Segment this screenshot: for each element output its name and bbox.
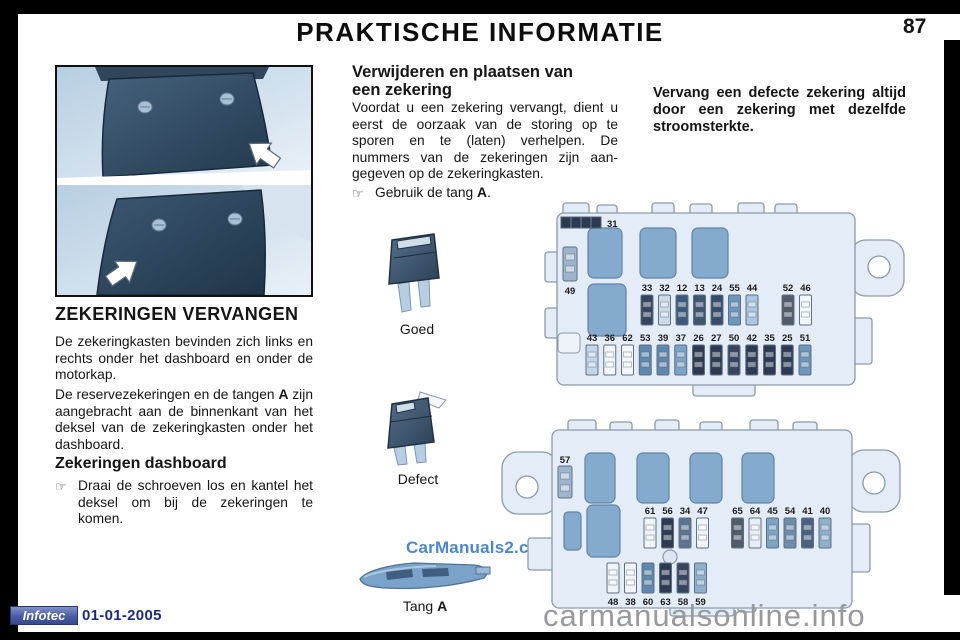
fuse-band [641,352,649,357]
side-fuse-49: 49 [563,247,577,297]
fuse [625,563,637,593]
fuse-band [804,535,812,540]
fuse-band [624,352,632,357]
fuse-band [664,525,672,530]
fuse [764,345,776,375]
fuse [819,518,831,548]
fuse [749,518,761,548]
fuse-number: 64 [750,506,761,517]
fuse [604,345,616,375]
fuse [657,345,669,375]
mounting-hole [868,256,890,278]
bullet-text: Draai de schroeven los en kantel het dek… [78,478,313,528]
fuse-number: 55 [729,283,740,294]
fuse-band [661,302,669,307]
fuse-number: 40 [820,506,831,517]
fuse-number: 27 [711,333,722,344]
fuse [767,518,779,548]
fuse [693,345,705,375]
good-fuse-icon [384,226,446,316]
fuse-band [695,362,703,367]
fuse-number: 46 [800,283,811,294]
section-title-zekeringen-vervangen: ZEKERINGEN VERVANGEN [55,304,315,325]
fuse-band [748,362,756,367]
fuse [746,295,758,325]
fuse-number: 51 [800,333,811,344]
fuse-band [699,535,707,540]
fuse-band [713,302,721,307]
fuse-band [588,362,596,367]
side-fuse-57: 57 [558,455,572,498]
fuse [781,345,793,375]
fuse [639,345,651,375]
fuse-band [644,580,652,585]
fuse-band [643,302,651,307]
fuse-band [659,352,667,357]
fuse-band [627,570,635,575]
fuse-band [606,362,614,367]
fuse-band [681,525,689,530]
fuse-band [695,352,703,357]
paragraph-fuse-replace: Voordat u een zekering vervangt, dient u… [352,100,618,183]
fuse-band [731,312,739,317]
label-text: Tang [403,598,437,614]
fuse-number: 62 [622,333,633,344]
infotec-logo: Infotec [10,606,78,625]
fuse-band [677,362,685,367]
bullet-text-part: Gebruik de tang [375,185,477,200]
fuse-number: 13 [694,283,705,294]
section-title-zekeringen-dashboard: Zekeringen dashboard [55,455,315,473]
fuse-band [821,535,829,540]
tang-tool-label: Tang A [356,598,494,614]
screw-hole [663,550,677,564]
paragraph-spare-fuses: De reservezekeringen en de tangen A zijn… [55,387,313,453]
fuse-band [712,352,720,357]
fuse-band [641,362,649,367]
fuse-band [769,535,777,540]
fuse [697,518,709,548]
fuse [660,563,672,593]
fuse-number: 54 [785,506,796,517]
section-title-verwijderen: Verwijderen en plaatsen van een zekering [352,63,590,99]
fuse-number: 56 [662,506,673,517]
fuse-number: 24 [712,283,723,294]
fuse-band [643,312,651,317]
instruction-bullet: ☞ Draai de schroeven los en kantel het d… [55,478,313,528]
fuse-band [802,302,810,307]
fuse-number: 32 [659,283,670,294]
manual-page: PRAKTISCHE INFORMATIE 87 [0,0,960,640]
fuse-band [766,362,774,367]
fuse [622,345,634,375]
fuse-band [734,525,742,530]
fuse [586,345,598,375]
fuse-band [696,302,704,307]
fuse-band [588,352,596,357]
fuse-band [748,352,756,357]
fuse-band [783,352,791,357]
fuse-band [731,302,739,307]
defect-fuse-figure: Defect [382,388,454,487]
fuse-band [627,580,635,585]
pointing-hand-icon: ☞ [55,478,78,528]
pointing-hand-icon: ☞ [352,185,375,203]
fuse-number: 57 [560,455,571,466]
fuse [732,518,744,548]
fuse-number: 50 [729,333,740,344]
fuse-band [678,302,686,307]
fuse-band [662,570,670,575]
fuse [641,295,653,325]
fuse-number: 34 [680,506,691,517]
fuse-band [681,535,689,540]
good-fuse-label: Goed [384,321,450,337]
fuse-band [804,525,812,530]
fuse-band [677,352,685,357]
fuse [675,345,687,375]
fuse-number: 31 [607,219,618,230]
page-title: PRAKTISCHE INFORMATIE [0,17,960,48]
fuse-band [697,580,705,585]
fuse-band [678,312,686,317]
fuse [679,518,691,548]
fuse-band [734,535,742,540]
paragraph-fusebox-location: De zekeringkasten bevinden zich links en… [55,334,313,384]
mounting-hole [516,476,538,498]
frame-top-bar [0,0,960,14]
fuse-number: 65 [732,506,743,517]
fuse [729,295,741,325]
fuse-band [784,302,792,307]
fuse [746,345,758,375]
fuse [800,295,812,325]
dashboard-fusebox-photo [55,65,313,297]
fuse-number: 45 [767,506,778,517]
fuse-band [606,352,614,357]
fuse-band [801,362,809,367]
fuse-band [697,570,705,575]
fuse-number: 41 [802,506,813,517]
tool-reference-bold: A [437,598,447,614]
defect-fuse-icon [382,388,452,466]
fuse-number: 52 [783,283,794,294]
fuse-number: 49 [565,286,576,297]
fuse-number: 35 [764,333,775,344]
lower-fuse-row-1: 61563447656445544140 [644,506,831,548]
fuse-band [786,535,794,540]
fuse-band [664,535,672,540]
fuse [659,295,671,325]
fuse [710,345,722,375]
fuse [644,518,656,548]
tang-tool-figure: Tang A [356,553,494,614]
good-fuse-figure: Goed [384,226,450,337]
fuse-band [730,362,738,367]
mounting-hole [863,472,885,494]
fuse [799,345,811,375]
bullet-text-part: . [487,185,491,200]
fuse [677,563,689,593]
fuse-band [609,570,617,575]
fuse-band [696,312,704,317]
fuse-band [769,525,777,530]
fuse-band [646,535,654,540]
fuse [695,563,707,593]
fuse-number: 53 [640,333,651,344]
fuse-number: 37 [675,333,686,344]
fuse-band [713,312,721,317]
edition-date: 01-01-2005 [82,607,162,624]
fuse-number: 25 [782,333,793,344]
fuse-number: 44 [747,283,758,294]
fuse [676,295,688,325]
fuse [642,563,654,593]
fuse [728,345,740,375]
fuse-band [751,525,759,530]
fuse-band [821,525,829,530]
fuse [607,563,619,593]
fuse [802,518,814,548]
fuse-band [786,525,794,530]
paragraph-text: De reservezekeringen en de tangen [55,387,278,402]
fuse-number: 43 [587,333,598,344]
frame-left-bar [0,14,18,640]
fuse [711,295,723,325]
fuse-band [802,312,810,317]
fuse-band [766,352,774,357]
fuse-band [624,362,632,367]
fuse-band [659,362,667,367]
fuse-band [730,352,738,357]
tool-reference-bold: A [477,185,487,200]
fuse-band [783,362,791,367]
fuse-band [751,535,759,540]
fuse [782,295,794,325]
fuse-band [679,570,687,575]
watermark-carmanualsonline: carmanualsonline.info [543,598,866,634]
fuse-number: 12 [677,283,688,294]
fuse-number: 47 [697,506,708,517]
fuse-band [609,580,617,585]
fuse-number: 26 [693,333,704,344]
tool-reference-bold: A [278,387,288,402]
fuse-band [679,580,687,585]
defect-fuse-label: Defect [382,471,454,487]
dashboard-photo-illustration [57,67,311,295]
fuse-band [699,525,707,530]
page-number: 87 [903,15,926,39]
fuse-number: 33 [642,283,653,294]
fusebox-diagrams: 31 49 57 33321213245544 [498,185,946,633]
fuse-band [748,312,756,317]
fuse-band [661,312,669,317]
fuse-band [646,525,654,530]
fuse [784,518,796,548]
fuse [662,518,674,548]
fuse-band [662,580,670,585]
fuse-number: 42 [746,333,757,344]
warning-text: Vervang een defecte zekering altijd door… [653,85,906,135]
fuse [694,295,706,325]
fuse-number: 39 [658,333,669,344]
fuse-band [644,570,652,575]
fuse-band [801,352,809,357]
fuse-number: 61 [645,506,656,517]
fuse-band [748,302,756,307]
frame-right-bar [944,40,960,595]
fuse-band [712,362,720,367]
strip-fuse-31: 31 [561,217,618,230]
fuse-band [784,312,792,317]
pliers-tool-icon [356,553,494,593]
small-socket [558,333,580,353]
fuse-number: 36 [604,333,615,344]
